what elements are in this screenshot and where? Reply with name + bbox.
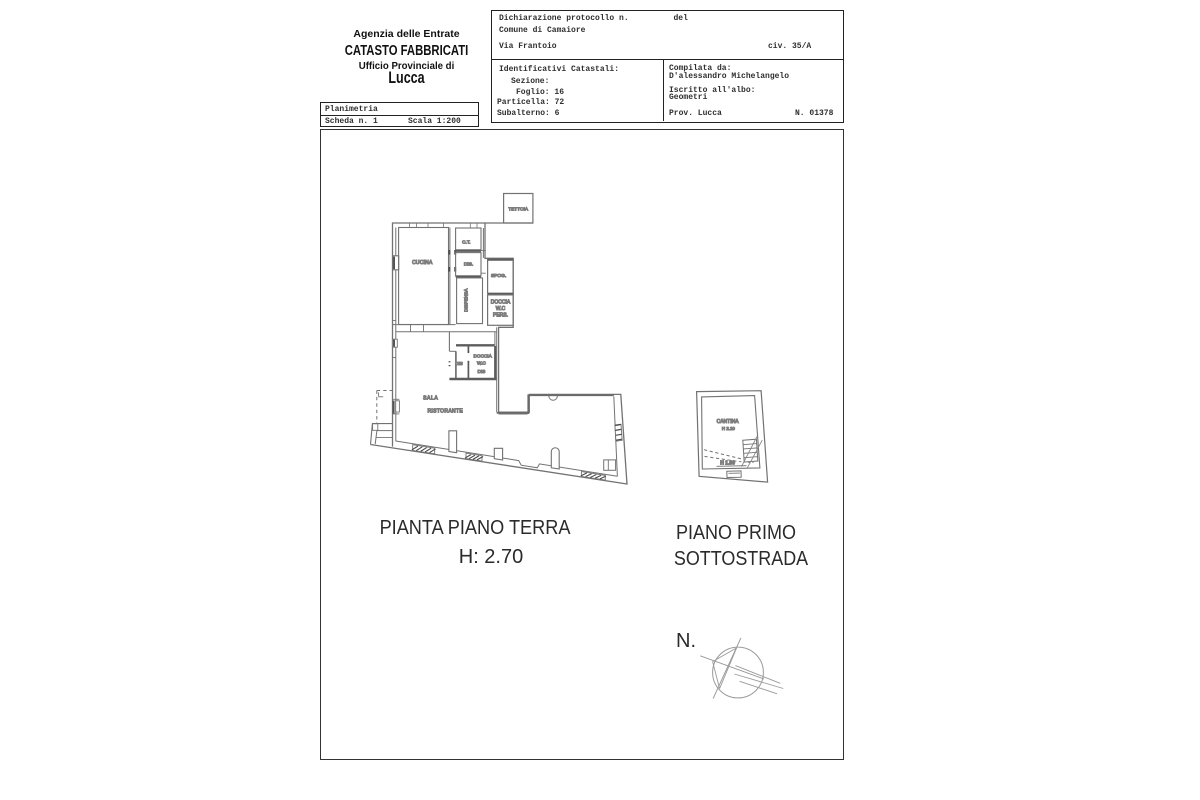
- svg-text:H 2.10: H 2.10: [722, 426, 735, 431]
- svg-text:PERS.: PERS.: [493, 312, 508, 318]
- svg-text:SALA: SALA: [423, 396, 438, 402]
- svg-text:W.C: W.C: [477, 361, 486, 366]
- svg-text:DIS: DIS: [477, 369, 485, 374]
- svg-text:DOCCIA: DOCCIA: [491, 300, 511, 306]
- svg-text:SPOG.: SPOG.: [491, 273, 506, 279]
- svg-text:DOCCIA: DOCCIA: [473, 354, 492, 359]
- svg-text:RISTORANTE: RISTORANTE: [427, 409, 463, 415]
- svg-text:DISPENSA: DISPENSA: [464, 288, 469, 312]
- svg-text:DIS: DIS: [455, 361, 463, 366]
- svg-text:CANTINA: CANTINA: [717, 419, 740, 425]
- svg-text:C.T.: C.T.: [462, 239, 470, 244]
- svg-text:W.C: W.C: [496, 306, 506, 312]
- svg-text:TETTOIA: TETTOIA: [508, 206, 529, 211]
- svg-text:DIS.: DIS.: [464, 262, 473, 268]
- svg-text:CUCINA: CUCINA: [412, 260, 433, 266]
